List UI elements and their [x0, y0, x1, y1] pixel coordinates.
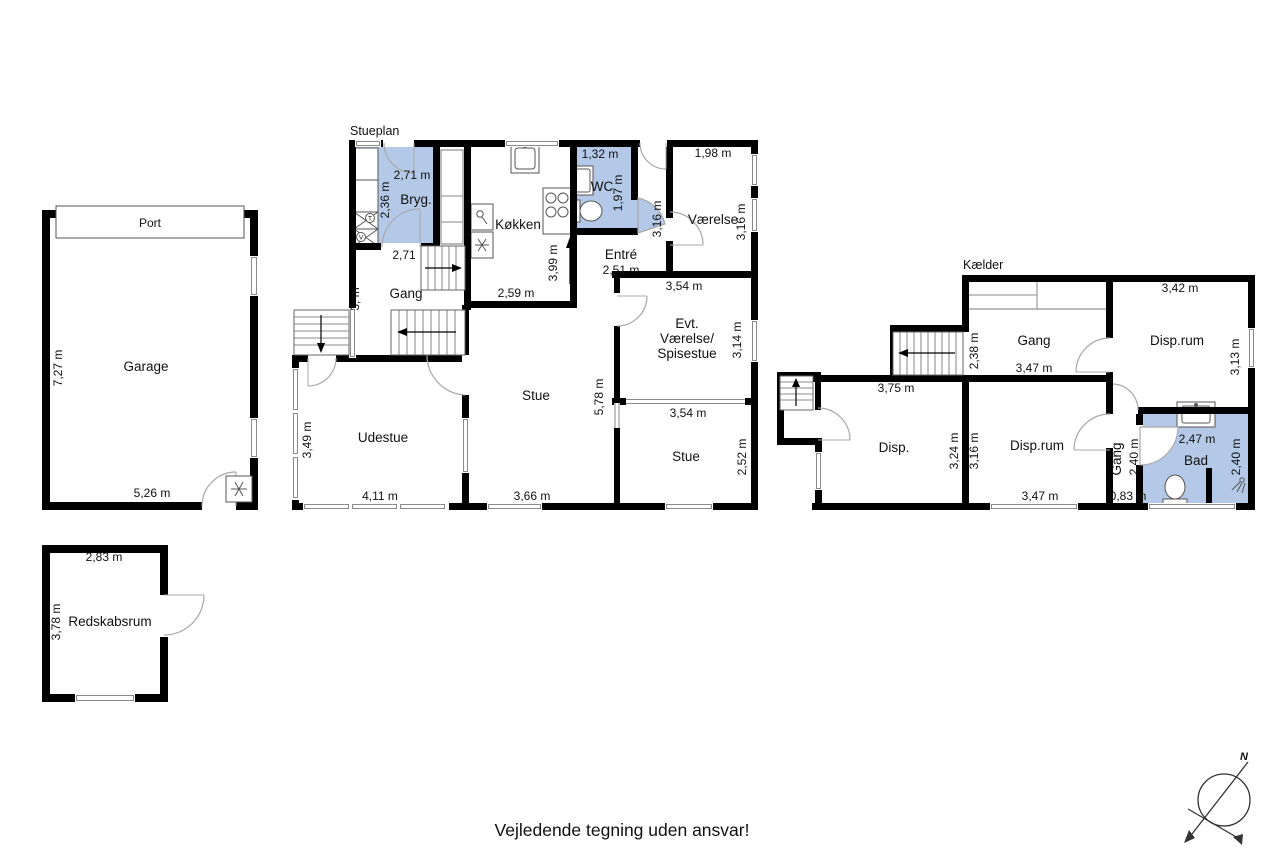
kaelder-gang-height-dim: 2,38 m — [967, 333, 981, 370]
closet-icon — [968, 281, 1108, 309]
stue-width-dim: 3,66 m — [514, 489, 551, 503]
bad-height-dim: 2,40 m — [1229, 439, 1243, 476]
entre-area-label: Entré — [605, 247, 637, 262]
disprum2-area-label: Disp.rum — [1010, 438, 1064, 453]
bryg-width-dim: 2,71 m — [394, 168, 431, 182]
stairs-icon — [893, 332, 963, 375]
bryg-width-dim2: 2,71 — [392, 248, 416, 262]
sink-icon — [511, 144, 539, 173]
spisestue-area-label-line2: Værelse/ — [660, 331, 714, 346]
stove-icon — [543, 188, 571, 234]
bryg-area-label: Bryg. — [400, 192, 432, 207]
disp-area-label: Disp. — [879, 440, 910, 455]
vaerelse-bottom-dim: 3,54 m — [666, 279, 703, 293]
outdoor-stairs-icon — [294, 310, 349, 355]
kaelder-title: Kælder — [963, 258, 1003, 272]
udestue-area-label: Udestue — [358, 430, 408, 445]
disclaimer-note: Vejledende tegning uden ansvar! — [495, 820, 750, 840]
koekken-width-dim: 2,59 m — [498, 286, 535, 300]
fridge-icon — [471, 204, 493, 230]
floorplan-canvas: Port Garage 7,27 m 5,26 m 2,83 m Redskab… — [0, 0, 1280, 853]
stueplan-plan: Stueplan T V — [292, 124, 758, 510]
bryg-height-dim: 2,36 m — [378, 182, 392, 219]
vaerelse-width-dim: 1,98 m — [695, 146, 732, 160]
disprum1-width-dim: 3,42 m — [1162, 281, 1199, 295]
washer-letter: T — [368, 216, 372, 223]
kaelder-gang-area-label: Gang — [1017, 333, 1050, 348]
wc-width-dim: 1,32 m — [582, 147, 619, 161]
stue2-height-dim: 2,52 m — [735, 439, 749, 476]
compass-north-label: N — [1240, 751, 1249, 763]
disprum2-width-dim: 3,47 m — [1022, 489, 1059, 503]
spisestue-height-dim: 3,14 m — [730, 322, 744, 359]
gang2-height-dim: 2,40 m — [1127, 439, 1141, 476]
garage-area-label: Garage — [123, 359, 168, 374]
gang2-area-label: Gang — [1109, 442, 1124, 475]
disprum1-height-dim: 3,13 m — [1228, 339, 1242, 376]
redskabsrum-area-label: Redskabsrum — [68, 614, 151, 629]
disp-width-dim: 3,75 m — [878, 381, 915, 395]
stue2-area-label: Stue — [672, 449, 700, 464]
koekken-height-dim: 3,99 m — [546, 245, 560, 282]
spisestue-bottom-dim: 3,54 m — [670, 406, 707, 420]
floorplan-page: { "titles": { "stueplan": "Stueplan", "k… — [0, 0, 1280, 853]
garage-plan: Port Garage 7,27 m 5,26 m — [42, 206, 258, 510]
garage-width-dim: 5,26 m — [134, 486, 171, 500]
disprum1-area-label: Disp.rum — [1150, 333, 1204, 348]
bad-area-label: Bad — [1184, 453, 1208, 468]
toilet-icon — [573, 200, 602, 222]
gang-area-label: Gang — [389, 286, 422, 301]
garage-height-dim: 7,27 m — [51, 350, 65, 387]
garage-port-label: Port — [139, 216, 162, 230]
vaerelse-height-dim: 3,16 m — [734, 204, 748, 241]
freezer-icon — [471, 232, 493, 258]
stairs-icon — [391, 310, 465, 355]
entre-height-dim: 3,16 m — [650, 201, 664, 238]
stue-height-dim: 5,78 m — [592, 379, 606, 416]
washer-icon: T — [354, 212, 378, 229]
stairs-icon — [421, 246, 465, 290]
udestue-width-dim: 4,11 m — [362, 489, 398, 503]
entre-width-dim: 2,51 m — [603, 263, 640, 277]
stue-area-label: Stue — [522, 388, 550, 403]
freezer-icon — [226, 476, 252, 502]
udestue-height-dim: 3,49 m — [300, 422, 314, 459]
redskabsrum-width-dim: 2,83 m — [86, 550, 123, 564]
disprum2-height-dim: 3,16 m — [967, 433, 981, 470]
disp-height-dim: 3,24 m — [947, 433, 961, 470]
closet-icon — [441, 150, 463, 244]
gang2-width-dim: 0,83 m — [1110, 489, 1147, 503]
spisestue-area-label-line1: Evt. — [675, 316, 698, 331]
redskabsrum-height-dim: 3,78 m — [49, 604, 63, 641]
gang-height-dim: 3, m — [348, 287, 362, 310]
wc-height-dim: 1,97 m — [611, 175, 625, 212]
outdoor-stairs-icon — [780, 376, 813, 410]
bad-sink-icon — [1177, 402, 1215, 427]
toilet-icon — [1163, 475, 1187, 507]
dryer-letter: V — [359, 235, 364, 242]
stueplan-title: Stueplan — [350, 124, 399, 138]
kaelder-gang-width-dim: 3,47 m — [1016, 361, 1053, 375]
spisestue-area-label-line3: Spisestue — [657, 346, 716, 361]
koekken-area-label: Køkken — [495, 217, 541, 232]
vaerelse-area-label: Værelse — [688, 212, 738, 227]
bad-width-dim: 2,47 m — [1179, 432, 1216, 446]
